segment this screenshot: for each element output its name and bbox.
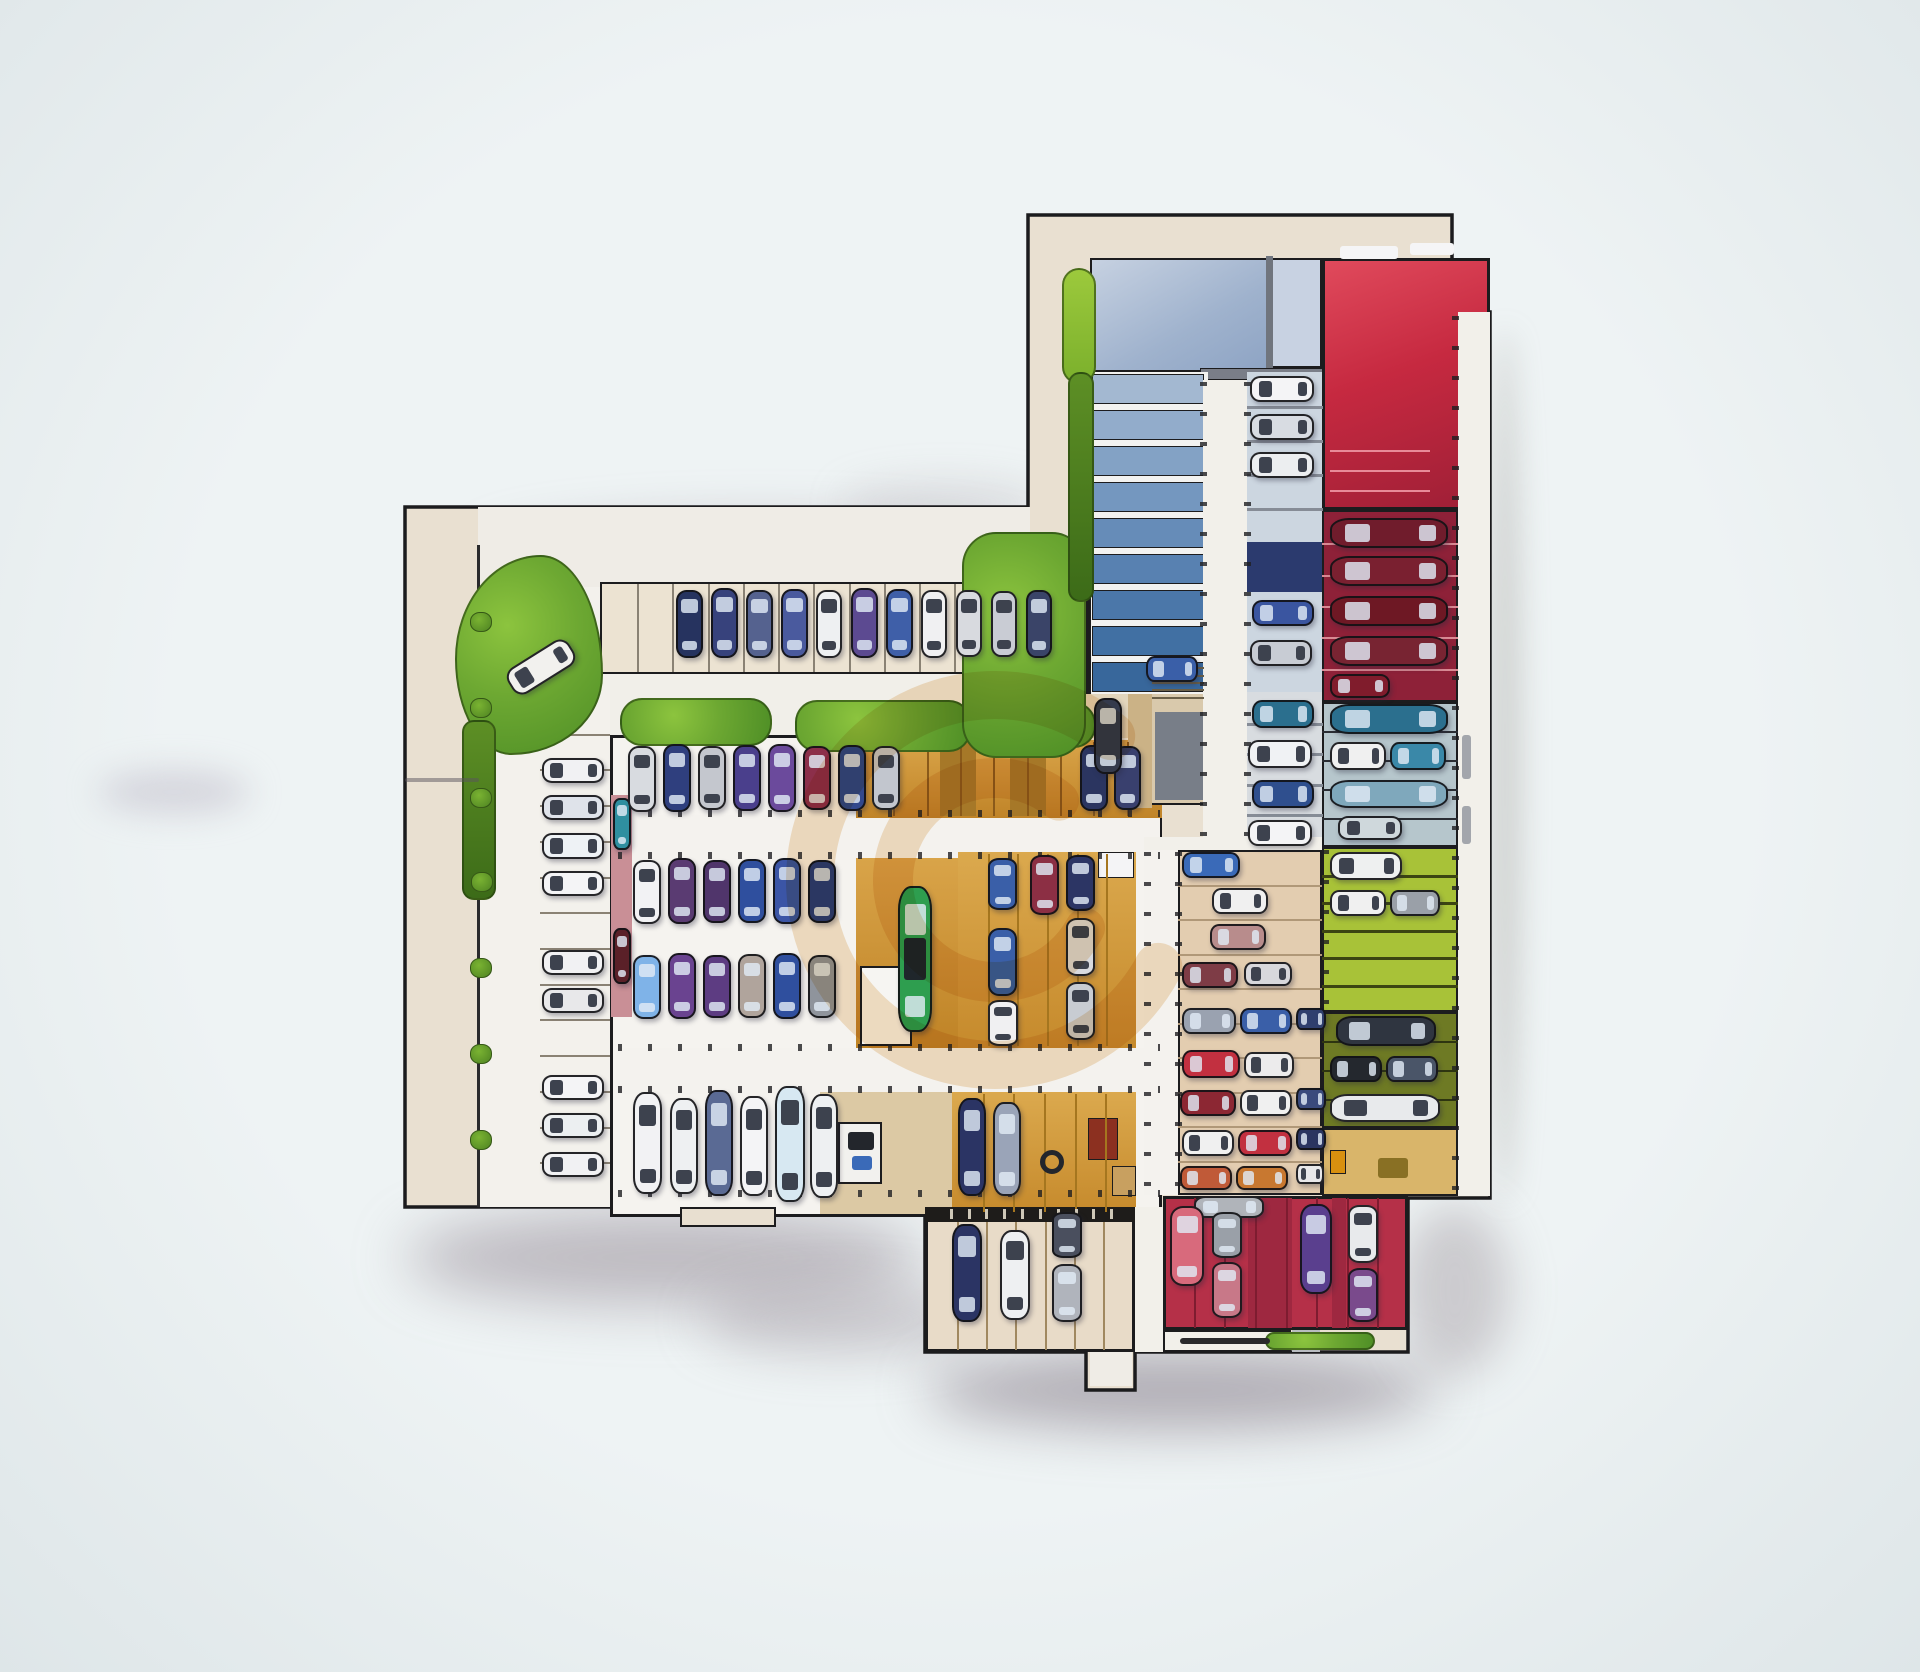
car: [1330, 674, 1390, 698]
car-rear-window: [1296, 826, 1305, 840]
car: [1348, 1268, 1378, 1322]
car-rear-window: [814, 1002, 829, 1011]
car-windshield: [1188, 1095, 1199, 1110]
car: [993, 1102, 1021, 1196]
car-rear-window: [1059, 1307, 1076, 1315]
car-windshield: [739, 754, 756, 768]
car-rear-window: [1355, 1248, 1372, 1256]
car-rear-window: [1279, 1014, 1286, 1028]
car-windshield: [1259, 381, 1272, 396]
mark-4: [1462, 806, 1471, 844]
car-windshield: [1257, 746, 1270, 763]
car: [1300, 1204, 1332, 1294]
car-windshield: [1354, 1276, 1372, 1287]
car: [1094, 698, 1122, 774]
zone-blue-stall-7: [1092, 590, 1204, 620]
car-windshield: [1189, 1135, 1200, 1150]
zone-aisle-bottom: [1135, 1207, 1163, 1352]
car-rear-window: [962, 640, 976, 649]
car: [1000, 1230, 1030, 1320]
car: [1390, 742, 1446, 770]
car-rear-window: [1355, 1308, 1372, 1316]
car-rear-window: [1419, 643, 1436, 660]
stall-line: [1247, 406, 1323, 409]
car-windshield: [746, 1109, 763, 1130]
car-windshield: [514, 665, 536, 688]
car: [1250, 452, 1314, 478]
car-windshield: [1031, 599, 1046, 613]
stall-line: [968, 1209, 971, 1219]
car: [886, 589, 913, 658]
car-windshield: [669, 753, 686, 767]
car-windshield: [1251, 1057, 1261, 1072]
stall-line: [743, 584, 745, 672]
car: [991, 591, 1017, 657]
car: [1330, 518, 1448, 548]
car-windshield: [1301, 1093, 1307, 1106]
car: [851, 588, 878, 658]
car-windshield: [550, 763, 563, 778]
car-windshield: [716, 597, 732, 612]
car-rear-window: [1372, 748, 1380, 763]
car: [838, 745, 866, 811]
car-windshield: [1058, 1219, 1076, 1228]
car: [803, 746, 831, 810]
car: [1296, 1128, 1326, 1150]
car: [808, 955, 836, 1018]
car: [1338, 816, 1402, 840]
car-rear-window: [711, 1170, 726, 1185]
stall-teeth-8: [1175, 852, 1182, 1194]
car-windshield: [814, 963, 831, 976]
car-windshield: [1354, 1213, 1372, 1225]
car-windshield: [964, 1110, 981, 1131]
car-rear-window: [704, 794, 719, 803]
stall-line: [1247, 440, 1323, 443]
car-windshield: [1220, 893, 1231, 908]
car-windshield: [1260, 605, 1273, 620]
car-rear-window: [1073, 897, 1089, 905]
car-windshield: [1258, 645, 1271, 660]
car-rear-window: [746, 1171, 761, 1185]
car-windshield: [1301, 1133, 1307, 1146]
stall-line: [986, 1222, 988, 1350]
car: [872, 746, 900, 810]
car: [668, 858, 696, 924]
car: [633, 955, 661, 1019]
car: [1244, 1052, 1294, 1078]
car-rear-window: [1185, 662, 1192, 676]
car: [668, 953, 696, 1019]
hedge-8: [1265, 1332, 1375, 1350]
car-rear-window: [1222, 1014, 1230, 1028]
car-rear-window: [1032, 641, 1046, 651]
stall-teeth-9: [1322, 850, 1329, 1010]
car-windshield: [1218, 1270, 1236, 1281]
car-windshield: [1257, 825, 1270, 840]
stall-line: [1045, 1222, 1047, 1350]
car: [711, 588, 738, 658]
car-rear-window: [682, 641, 697, 651]
car-windshield: [1393, 1061, 1404, 1076]
stall-line: [1330, 450, 1430, 452]
car-rear-window: [1219, 1246, 1236, 1252]
bush-4: [470, 958, 492, 978]
car: [663, 744, 691, 812]
car-windshield: [1260, 786, 1273, 803]
bush-6: [470, 1130, 492, 1150]
car-windshield: [550, 993, 563, 1008]
stall-line: [1152, 682, 1204, 684]
car-rear-window: [588, 956, 597, 969]
car-windshield: [751, 599, 767, 613]
car-rear-window: [709, 907, 724, 916]
car-rear-window: [1225, 1056, 1233, 1071]
car: [956, 590, 982, 657]
car-rear-window: [640, 1169, 656, 1184]
car-rear-window: [1279, 1096, 1286, 1110]
car: [1330, 780, 1448, 808]
car: [1212, 1262, 1242, 1318]
car: [1030, 855, 1059, 915]
car-windshield: [1190, 967, 1201, 982]
car-windshield: [1251, 967, 1261, 981]
car-windshield: [676, 1110, 693, 1130]
car-rear-window: [618, 837, 627, 844]
car-rear-window: [959, 1297, 976, 1311]
car: [1330, 704, 1448, 734]
stall-line: [1152, 697, 1204, 699]
car-rear-window: [1298, 458, 1307, 472]
stall-line: [1286, 1198, 1288, 1328]
car-rear-window: [1419, 563, 1436, 580]
car-rear-window: [844, 794, 859, 803]
car-windshield: [1301, 1013, 1307, 1026]
car: [1336, 1016, 1436, 1046]
car-rear-window: [1059, 1246, 1076, 1252]
car-rear-window: [717, 640, 732, 650]
car: [542, 1152, 604, 1177]
car-windshield: [1247, 1013, 1258, 1028]
car-windshield: [958, 1236, 976, 1257]
car: [1240, 1008, 1292, 1034]
car-rear-window: [1177, 1266, 1196, 1277]
car-windshield: [814, 868, 831, 881]
car: [1052, 1264, 1082, 1322]
car-windshield: [844, 754, 861, 768]
car-windshield: [1177, 1216, 1198, 1233]
car-rear-window: [1120, 794, 1135, 803]
car-windshield: [816, 1107, 833, 1129]
car-windshield: [1190, 1013, 1201, 1028]
car-rear-window: [1318, 1133, 1322, 1145]
car-rear-window: [1425, 1062, 1432, 1076]
car: [1236, 1166, 1288, 1190]
car-windshield: [1349, 1022, 1370, 1040]
car-rear-window: [1254, 894, 1262, 908]
car: [952, 1224, 982, 1322]
car-rear-window: [809, 794, 824, 803]
car-rear-window: [669, 795, 684, 805]
stall-line: [1322, 957, 1458, 960]
car: [738, 859, 766, 923]
stall-line: [540, 1055, 610, 1057]
car: [988, 1000, 1018, 1046]
car-rear-window: [995, 1034, 1012, 1040]
car-windshield: [639, 964, 656, 977]
bush-0: [470, 612, 492, 632]
car-windshield: [550, 1080, 563, 1095]
car-rear-window: [905, 996, 924, 1017]
mark-8: [848, 1132, 874, 1150]
hedge-3: [795, 700, 971, 752]
car-rear-window: [779, 1002, 794, 1011]
car-rear-window: [744, 907, 759, 916]
car-windshield: [1345, 524, 1370, 542]
car-windshield: [550, 1157, 563, 1172]
car-windshield: [1247, 1095, 1258, 1110]
car-windshield: [1398, 748, 1409, 765]
car-rear-window: [779, 907, 794, 916]
car: [1330, 852, 1402, 880]
car: [958, 1098, 986, 1196]
car-rear-window: [1296, 646, 1305, 660]
car-windshield: [1218, 929, 1229, 944]
car-rear-window: [1296, 746, 1305, 761]
car-windshield: [1246, 1135, 1257, 1150]
stall-line: [1103, 1222, 1105, 1350]
stall-line: [1178, 885, 1322, 887]
car-windshield: [1260, 706, 1273, 723]
car-rear-window: [618, 970, 627, 978]
car: [542, 833, 604, 859]
bush-2: [470, 788, 492, 808]
car: [1250, 640, 1312, 666]
car: [1248, 740, 1312, 768]
car: [703, 955, 731, 1018]
car-windshield: [709, 963, 726, 976]
car-windshield: [786, 598, 802, 612]
car: [1330, 742, 1386, 770]
car-windshield: [1243, 1171, 1254, 1185]
stall-line: [1039, 1209, 1042, 1219]
car-rear-window: [995, 897, 1011, 904]
car: [775, 1086, 805, 1202]
car-windshield: [639, 1105, 657, 1127]
car-rear-window: [1246, 1201, 1256, 1213]
bush-3: [471, 872, 493, 892]
car-rear-window: [674, 907, 689, 916]
car-rear-window: [999, 1172, 1014, 1186]
car-windshield: [1306, 1215, 1326, 1234]
zone-bottom-left-step: [680, 1207, 776, 1227]
car-windshield: [744, 963, 761, 976]
car-windshield: [1345, 562, 1370, 580]
car-rear-window: [752, 641, 767, 651]
car: [740, 1096, 768, 1196]
car-windshield: [704, 755, 721, 768]
car-windshield: [634, 755, 651, 769]
car: [1210, 924, 1266, 950]
car-rear-window: [1427, 896, 1434, 910]
car-windshield: [1347, 821, 1360, 835]
car-rear-window: [964, 1171, 979, 1185]
car: [542, 1113, 604, 1138]
zone-blue-stall-2: [1092, 410, 1204, 440]
car: [1066, 855, 1095, 911]
car: [921, 590, 947, 658]
car-windshield: [1345, 602, 1370, 620]
car-rear-window: [588, 764, 597, 777]
car-windshield: [999, 1114, 1016, 1134]
car: [1182, 1130, 1234, 1156]
car-rear-window: [588, 1119, 597, 1132]
stall-line: [1003, 1209, 1006, 1219]
stall-teeth-0: [618, 810, 1160, 817]
car-rear-window: [892, 640, 907, 650]
zone-divider-wall: [1266, 256, 1273, 372]
car-rear-window: [1073, 961, 1089, 969]
car-rear-window: [1221, 1136, 1228, 1150]
car-windshield: [1301, 1168, 1306, 1179]
car-windshield: [550, 876, 563, 891]
car-rear-window: [588, 1158, 597, 1171]
stall-line: [540, 984, 610, 986]
car-rear-window: [1419, 603, 1436, 620]
car: [1296, 1008, 1326, 1030]
car-rear-window: [816, 1172, 831, 1187]
car-windshield: [1187, 1171, 1198, 1185]
car: [633, 1092, 662, 1194]
car-rear-window: [1384, 858, 1394, 873]
car: [1170, 1206, 1204, 1286]
car-rear-window: [1222, 1096, 1230, 1110]
ring-icon-0: [1040, 1150, 1064, 1174]
stall-line: [813, 584, 815, 672]
stall-line: [927, 742, 929, 816]
car: [703, 860, 731, 923]
car-windshield: [1190, 857, 1202, 872]
car-rear-window: [774, 795, 789, 805]
car: [676, 590, 703, 658]
car: [542, 795, 604, 820]
car: [781, 589, 808, 658]
car-windshield: [681, 599, 697, 613]
stall-line: [540, 912, 610, 914]
stall-line: [540, 1019, 610, 1021]
car-windshield: [550, 800, 563, 815]
car: [1180, 1090, 1236, 1116]
car-rear-window: [878, 794, 893, 803]
car: [670, 1098, 698, 1194]
car: [1296, 1164, 1324, 1184]
mark-3: [1462, 735, 1471, 779]
car-windshield: [1058, 1272, 1076, 1284]
car-windshield: [779, 867, 796, 881]
car: [1182, 1008, 1236, 1034]
bush-5: [470, 1044, 492, 1064]
zone-stair-dark-block: [1155, 712, 1203, 800]
stall-teeth-6: [1244, 382, 1251, 840]
car-rear-window: [588, 877, 597, 890]
car-rear-window: [1419, 711, 1436, 728]
zone-bottom-tab: [1090, 1352, 1132, 1386]
car-rear-window: [588, 801, 597, 814]
car: [1244, 962, 1292, 986]
mark-9: [852, 1156, 872, 1170]
car-windshield: [1397, 895, 1407, 910]
car-rear-window: [552, 645, 569, 664]
car-windshield: [1337, 1061, 1348, 1076]
stall-line: [960, 742, 962, 816]
car: [1330, 636, 1448, 666]
car: [1330, 890, 1386, 916]
car-rear-window: [1219, 1304, 1236, 1312]
stall-line: [672, 584, 674, 672]
car-rear-window: [709, 1002, 724, 1011]
zone-blue-open-area-right: [1270, 258, 1322, 368]
car: [1252, 700, 1314, 728]
stall-line: [1330, 490, 1430, 492]
car-windshield: [1036, 863, 1054, 875]
car: [1330, 1056, 1382, 1082]
car-windshield: [674, 867, 691, 881]
car-rear-window: [857, 640, 872, 650]
car-rear-window: [1278, 1136, 1286, 1150]
car: [1182, 1050, 1240, 1078]
stall-line: [950, 1209, 953, 1219]
car-rear-window: [1275, 1172, 1282, 1185]
car: [746, 590, 773, 658]
zone-car-col-dark-band: [1247, 542, 1323, 592]
car-rear-window: [782, 1173, 799, 1190]
car: [808, 860, 836, 923]
car-rear-window: [1298, 606, 1307, 620]
car-windshield: [926, 599, 941, 613]
car: [1212, 888, 1268, 914]
stall-line: [708, 584, 710, 672]
car: [810, 1094, 838, 1198]
car-windshield: [617, 936, 627, 947]
hedge-6: [1062, 268, 1096, 384]
car: [1240, 1090, 1292, 1116]
car-rear-window: [1086, 794, 1101, 803]
hedge-7: [1068, 372, 1094, 602]
car-windshield: [550, 838, 563, 853]
car-rear-window: [1316, 1169, 1320, 1179]
zone-blue-open-area-left: [1090, 258, 1268, 372]
car: [1066, 918, 1095, 976]
car-rear-window: [927, 641, 941, 651]
car: [613, 928, 631, 984]
stall-line: [1021, 1209, 1024, 1219]
mark-7: [1410, 243, 1454, 255]
zone-amber-box: [1330, 1150, 1346, 1174]
car: [542, 758, 604, 783]
car: [988, 858, 1017, 910]
car-rear-window: [1318, 1093, 1322, 1105]
car-rear-window: [588, 1081, 597, 1094]
car-windshield: [821, 599, 836, 613]
mark-1: [1378, 1158, 1408, 1178]
car: [768, 744, 796, 812]
car: [1348, 1205, 1378, 1263]
car-windshield: [1338, 895, 1349, 910]
stall-teeth-5: [1200, 382, 1207, 840]
car-rear-window: [674, 1002, 689, 1011]
car-windshield: [1190, 1056, 1202, 1073]
car-rear-window: [1375, 680, 1383, 693]
